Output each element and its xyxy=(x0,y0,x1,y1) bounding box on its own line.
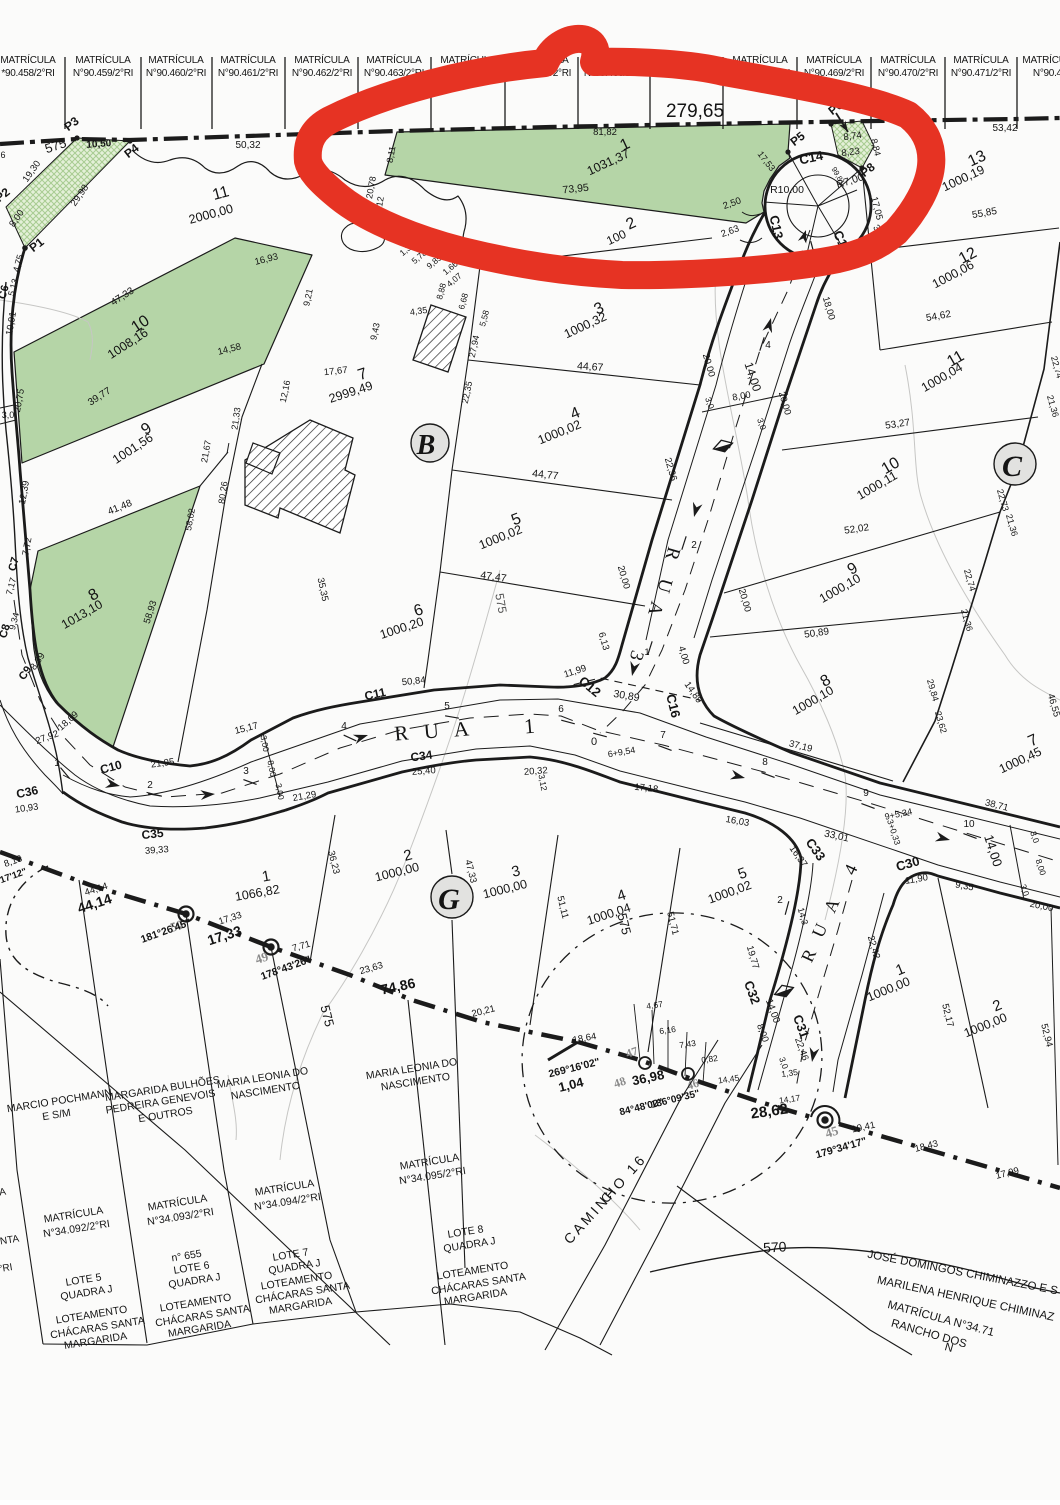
svg-text:N°90.47: N°90.47 xyxy=(1033,68,1060,79)
svg-text:50,32: 50,32 xyxy=(235,140,260,151)
svg-text:81,82: 81,82 xyxy=(593,127,617,138)
svg-text:44,67: 44,67 xyxy=(577,360,604,374)
svg-text:2: 2 xyxy=(777,895,783,906)
svg-text:4: 4 xyxy=(341,721,347,732)
svg-text:9: 9 xyxy=(863,788,869,799)
svg-text:B: B xyxy=(416,430,436,461)
svg-text:N°90.470/2°RI: N°90.470/2°RI xyxy=(878,68,938,79)
svg-text:MATRÍCULA: MATRÍCULA xyxy=(220,53,276,66)
svg-text:20,32: 20,32 xyxy=(524,765,548,778)
svg-text:R10.00: R10.00 xyxy=(770,184,804,196)
svg-text:N°90.471/2°RI: N°90.471/2°RI xyxy=(951,68,1011,79)
svg-text:R: R xyxy=(393,720,409,745)
svg-text:0: 0 xyxy=(591,736,597,748)
svg-text:2: 2 xyxy=(147,780,153,791)
svg-text:U: U xyxy=(423,718,440,743)
svg-text:°RI: °RI xyxy=(0,1262,13,1275)
svg-text:570: 570 xyxy=(763,1238,787,1255)
svg-text:39,33: 39,33 xyxy=(145,844,169,857)
svg-text:MATRÍCULA: MATRÍCULA xyxy=(880,53,936,66)
svg-text:2: 2 xyxy=(691,540,697,551)
svg-text:G: G xyxy=(438,883,460,916)
svg-text:10,50: 10,50 xyxy=(86,138,112,151)
svg-text:7: 7 xyxy=(660,730,666,741)
svg-text:*90.458/2°RI: *90.458/2°RI xyxy=(1,68,54,79)
svg-text:MATRÍCULA: MATRÍCULA xyxy=(953,53,1009,66)
svg-text:5: 5 xyxy=(444,701,450,712)
svg-text:N°90.460/2°RI: N°90.460/2°RI xyxy=(146,68,206,79)
svg-text:53,42: 53,42 xyxy=(992,123,1017,134)
svg-text:3: 3 xyxy=(243,766,249,777)
svg-text:3,0: 3,0 xyxy=(2,410,15,420)
svg-text:4: 4 xyxy=(765,340,771,351)
svg-text:279,65: 279,65 xyxy=(666,101,724,122)
svg-text:C: C xyxy=(1002,450,1023,483)
svg-text:A: A xyxy=(453,716,471,741)
svg-text:MATRÍCULA: MATRÍCULA xyxy=(0,53,56,66)
svg-text:MATRÍCULA: MATRÍCULA xyxy=(148,53,204,66)
svg-text:C35: C35 xyxy=(141,826,165,842)
svg-text:MATRÍCULA: MATRÍCULA xyxy=(366,53,422,66)
svg-text:10: 10 xyxy=(963,819,975,830)
svg-text:25,40: 25,40 xyxy=(412,765,436,778)
svg-text:1: 1 xyxy=(523,714,536,739)
svg-text:MATRÍCULA: MATRÍCULA xyxy=(1022,53,1060,66)
svg-text:N°90.461/2°RI: N°90.461/2°RI xyxy=(218,68,278,79)
svg-text:8: 8 xyxy=(762,757,768,768)
svg-text:MATRÍCULA: MATRÍCULA xyxy=(294,53,350,66)
svg-text:N°90.462/2°RI: N°90.462/2°RI xyxy=(292,68,352,79)
svg-text:MATRÍCULA: MATRÍCULA xyxy=(75,53,131,66)
svg-text:N°90.459/2°RI: N°90.459/2°RI xyxy=(73,68,133,79)
svg-text:1: 1 xyxy=(54,758,60,769)
svg-text:MATRÍCULA: MATRÍCULA xyxy=(806,53,862,66)
svg-text:6: 6 xyxy=(558,704,564,715)
svg-text:6: 6 xyxy=(0,150,5,160)
